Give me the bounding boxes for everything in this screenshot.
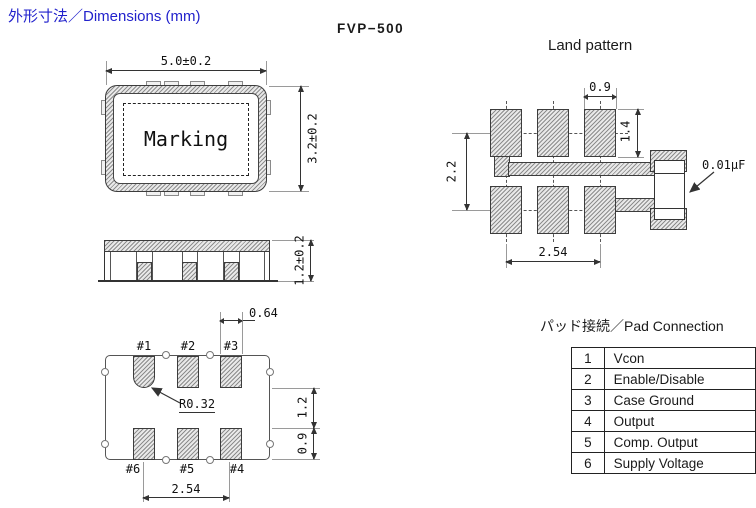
dim-tail-line: [243, 320, 255, 321]
dim-top-height: 3.2±0.2: [307, 103, 320, 175]
edge-notch: [266, 440, 274, 448]
dim-side-thickness: 1.2±0.2: [294, 225, 307, 297]
pad-function: Enable/Disable: [604, 369, 755, 390]
table-row: 4 Output: [572, 411, 756, 432]
dim-line: [584, 96, 616, 97]
edge-notch: [206, 351, 214, 359]
dim-line: [310, 240, 311, 281]
side-edge-line: [110, 252, 111, 281]
capacitor-terminal-line: [655, 208, 684, 209]
pad-connection-table: 1 Vcon 2 Enable/Disable 3 Case Ground 4 …: [571, 347, 756, 474]
dim-land-row-pitch: 2.2: [446, 157, 459, 187]
table-row: 6 Supply Voltage: [572, 453, 756, 474]
side-edge-line: [264, 252, 265, 281]
land-pad-5: [537, 186, 569, 234]
side-pad-hatched: [137, 262, 152, 282]
land-pad-2: [537, 109, 569, 157]
dim-pad-height: 0.9: [297, 429, 310, 459]
side-pad-hatched: [224, 262, 239, 282]
pad-6: [133, 428, 155, 460]
land-pad-4: [584, 186, 616, 234]
side-pad-hatched: [182, 262, 197, 282]
pad-1: [133, 356, 155, 388]
side-edge-line: [152, 252, 153, 281]
pad-number: 2: [572, 369, 605, 390]
pad-connection-title: パッド接続／Pad Connection: [540, 316, 724, 336]
land-pad-1: [490, 109, 522, 157]
dim-pad-pitch: 2.54: [156, 483, 216, 496]
pad-function: Output: [604, 411, 755, 432]
dim-line: [313, 388, 314, 428]
page-title: 外形寸法／Dimensions (mm): [8, 5, 201, 26]
pad-label-1: #1: [133, 340, 155, 353]
dim-line: [466, 133, 467, 210]
pad-function: Case Ground: [604, 390, 755, 411]
pad-5: [177, 428, 199, 460]
pad-label-2: #2: [177, 340, 199, 353]
pad-4: [220, 428, 242, 460]
pad-function: Vcon: [604, 348, 755, 369]
dim-pad-width: 0.64: [249, 307, 278, 320]
pad-function: Supply Voltage: [604, 453, 755, 474]
dim-line: [143, 497, 229, 498]
dim-line: [506, 261, 600, 262]
capacitor-leader-arrow: [690, 172, 714, 192]
marking-label: Marking: [126, 127, 246, 151]
radius-label: R0.32: [179, 398, 215, 413]
dim-row-gap: 1.2: [297, 393, 310, 423]
pad-2: [177, 356, 199, 388]
land-pad-3: [584, 109, 616, 157]
capacitor-terminal-line: [655, 173, 684, 174]
table-row: 3 Case Ground: [572, 390, 756, 411]
datasheet-dimensions-page: 外形寸法／Dimensions (mm) FVP−500 5.0±0.2 Mar…: [0, 0, 756, 508]
edge-notch: [162, 351, 170, 359]
model-number: FVP−500: [337, 21, 404, 36]
edge-notch: [101, 368, 109, 376]
seating-plane-line: [98, 280, 278, 282]
dim-land-pad-width: 0.9: [584, 81, 616, 94]
table-row: 2 Enable/Disable: [572, 369, 756, 390]
dim-line: [106, 70, 266, 71]
pad-label-6: #6: [122, 463, 144, 476]
edge-notch: [101, 440, 109, 448]
edge-notch: [162, 456, 170, 464]
pad-3: [220, 356, 242, 388]
land-pad-6: [490, 186, 522, 234]
pad-number: 6: [572, 453, 605, 474]
dim-line: [300, 86, 301, 191]
table-row: 5 Comp. Output: [572, 432, 756, 453]
dim-land-col-pitch: 2.54: [523, 246, 583, 259]
ext-line: [452, 133, 490, 134]
pad-function: Comp. Output: [604, 432, 755, 453]
land-pattern-title: Land pattern: [548, 37, 632, 54]
pad-number: 3: [572, 390, 605, 411]
dim-line: [313, 428, 314, 459]
dim-line: [637, 109, 638, 157]
pad-label-3: #3: [220, 340, 242, 353]
capacitor-value-label: 0.01μF: [702, 159, 745, 172]
side-edge-line: [239, 252, 240, 281]
ext-line: [452, 210, 490, 211]
pad-number: 4: [572, 411, 605, 432]
dim-line: [220, 320, 242, 321]
pad-label-5: #5: [176, 463, 198, 476]
pad-number: 5: [572, 432, 605, 453]
dim-land-pad-height: 1.4: [620, 117, 633, 147]
side-lid-hatched: [104, 240, 270, 252]
pad-number: 1: [572, 348, 605, 369]
edge-notch: [266, 368, 274, 376]
capacitor-body: [654, 160, 685, 220]
side-edge-line: [197, 252, 198, 281]
trace-to-capacitor-top: [508, 162, 656, 176]
dim-top-width: 5.0±0.2: [150, 55, 222, 68]
table-row: 1 Vcon: [572, 348, 756, 369]
edge-notch: [206, 456, 214, 464]
